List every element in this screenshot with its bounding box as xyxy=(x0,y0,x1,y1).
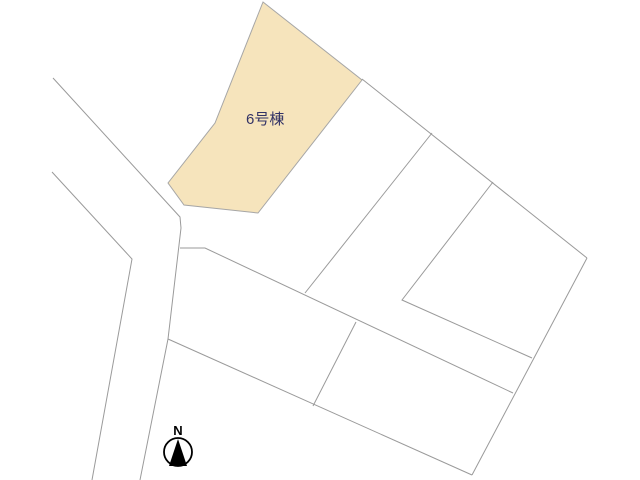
division-line-4 xyxy=(313,322,356,406)
highlighted-parcel-6 xyxy=(168,2,362,213)
site-plan-canvas: 6号棟 N xyxy=(0,0,640,480)
north-compass: N xyxy=(164,423,192,466)
road-east-edge xyxy=(53,78,181,480)
plot-map: 6号棟 N xyxy=(0,0,640,480)
division-line-3 xyxy=(180,248,513,393)
block-south-boundary xyxy=(168,339,472,475)
north-arrow-icon xyxy=(169,439,187,466)
boundary-lines xyxy=(52,78,587,480)
block-east-boundary xyxy=(472,258,587,475)
parcel-label: 6号棟 xyxy=(246,111,284,128)
division-line-2 xyxy=(402,182,532,358)
road-west-edge xyxy=(52,172,132,480)
compass-north-label: N xyxy=(173,423,182,438)
block-north-boundary xyxy=(362,79,587,258)
division-line-1 xyxy=(305,133,432,293)
